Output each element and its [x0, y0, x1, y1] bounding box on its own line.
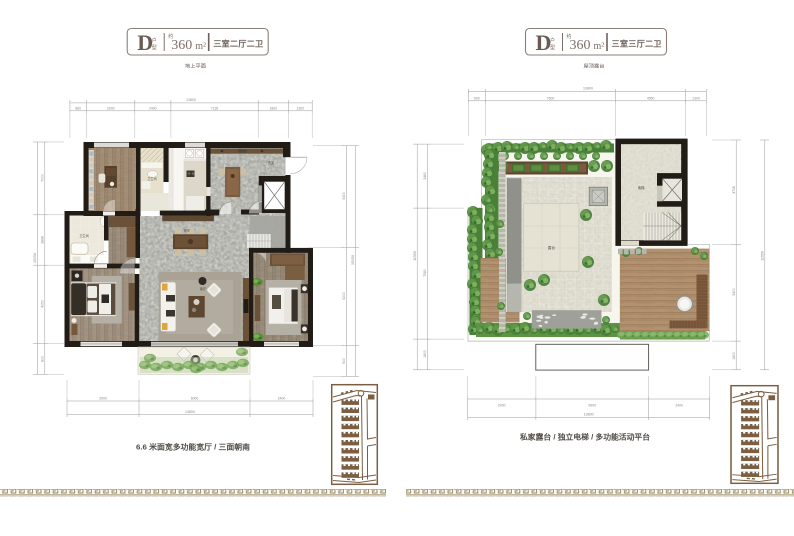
svg-text:3460: 3460: [423, 172, 427, 180]
svg-text:4738: 4738: [732, 186, 736, 194]
svg-text:15150: 15150: [351, 255, 355, 265]
svg-text:360: 360: [171, 38, 192, 53]
svg-text:三室二厅二卫: 三室二厅二卫: [213, 39, 263, 49]
svg-text:900: 900: [342, 358, 346, 364]
svg-text:型: 型: [550, 44, 555, 51]
svg-text:卫生间: 卫生间: [147, 176, 157, 181]
svg-text:地上平面: 地上平面: [185, 63, 206, 70]
svg-text:600: 600: [474, 96, 480, 100]
svg-text:m²: m²: [195, 41, 206, 52]
svg-text:7600: 7600: [547, 96, 555, 100]
svg-text:屋顶露台: 屋顶露台: [584, 63, 605, 70]
svg-text:5200: 5200: [342, 292, 346, 300]
svg-text:三室三厅二卫: 三室三厅二卫: [612, 39, 662, 49]
svg-text:860: 860: [75, 106, 81, 110]
svg-text:露台: 露台: [548, 245, 556, 250]
svg-text:2400: 2400: [278, 397, 286, 401]
svg-text:13800: 13800: [186, 98, 196, 102]
svg-text:2400: 2400: [149, 106, 157, 110]
svg-text:4550: 4550: [647, 96, 655, 100]
svg-text:1300: 1300: [297, 106, 305, 110]
svg-text:7000: 7000: [40, 174, 44, 182]
svg-text:360: 360: [570, 38, 591, 53]
svg-text:2400: 2400: [498, 404, 506, 408]
svg-text:800: 800: [40, 356, 44, 362]
svg-text:1800: 1800: [732, 352, 736, 360]
svg-text:9600: 9600: [588, 404, 596, 408]
svg-text:型: 型: [152, 44, 157, 51]
svg-text:客厅: 客厅: [200, 286, 206, 291]
svg-text:1300: 1300: [692, 96, 700, 100]
svg-text:D: D: [536, 30, 552, 55]
svg-text:玄关: 玄关: [268, 160, 275, 165]
svg-text:2900: 2900: [107, 106, 115, 110]
svg-text:户: 户: [550, 37, 555, 44]
svg-text:5400: 5400: [342, 192, 346, 200]
svg-text:1800: 1800: [270, 106, 278, 110]
svg-text:3898: 3898: [40, 236, 44, 244]
svg-text:7580: 7580: [423, 269, 427, 277]
svg-text:4050: 4050: [40, 300, 44, 308]
svg-text:私家露台 / 独立电梯 / 多功能活动平台: 私家露台 / 独立电梯 / 多功能活动平台: [519, 433, 650, 442]
svg-text:卫生间: 卫生间: [79, 233, 89, 238]
svg-text:书房: 书房: [109, 175, 115, 180]
svg-text:2400: 2400: [675, 404, 683, 408]
svg-text:户: 户: [152, 37, 157, 44]
svg-text:餐厅: 餐厅: [184, 228, 190, 233]
svg-text:13800: 13800: [185, 410, 195, 414]
svg-text:11550: 11550: [761, 251, 765, 261]
svg-text:7136: 7136: [211, 106, 219, 110]
svg-text:11550: 11550: [413, 251, 417, 261]
svg-text:13800: 13800: [583, 87, 593, 91]
svg-text:6000: 6000: [191, 397, 199, 401]
svg-text:6.6 米面宽多功能宽厅 / 三面朝南: 6.6 米面宽多功能宽厅 / 三面朝南: [136, 443, 250, 452]
svg-text:15150: 15150: [33, 253, 37, 263]
svg-text:3900: 3900: [99, 397, 107, 401]
svg-text:1800: 1800: [423, 350, 427, 358]
svg-text:m²: m²: [594, 41, 605, 52]
svg-text:5400: 5400: [732, 288, 736, 296]
svg-text:13800: 13800: [584, 413, 594, 417]
svg-text:电梯: 电梯: [638, 185, 645, 190]
